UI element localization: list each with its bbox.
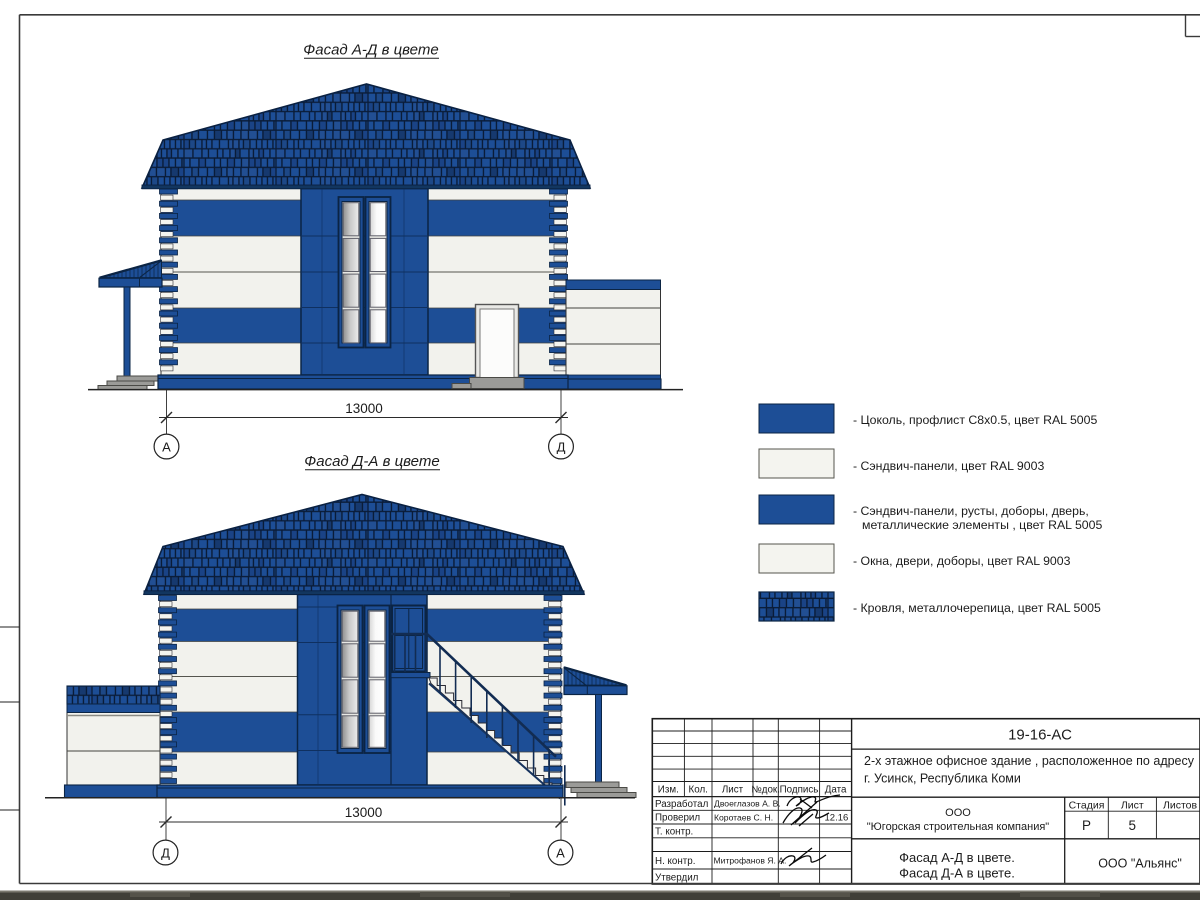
svg-text:ООО: ООО [945, 807, 971, 819]
svg-text:ООО "Альянс": ООО "Альянс" [1098, 857, 1182, 871]
svg-text:- Сэндвич-панели, русты, добор: - Сэндвич-панели, русты, доборы, дверь, [853, 504, 1089, 518]
svg-text:Фасад А-Д в цвете: Фасад А-Д в цвете [303, 42, 438, 59]
svg-text:№док.: №док. [751, 785, 780, 796]
svg-text:Фасад Д-А в цвете: Фасад Д-А в цвете [304, 453, 439, 470]
svg-text:Лист: Лист [1121, 800, 1144, 812]
svg-text:Коротаев С. Н.: Коротаев С. Н. [714, 812, 773, 822]
svg-text:- Сэндвич-панели, цвет RAL 900: - Сэндвич-панели, цвет RAL 9003 [853, 459, 1044, 473]
svg-text:Утвердил: Утвердил [655, 873, 699, 884]
svg-text:Изм.: Изм. [658, 785, 679, 796]
svg-text:Стадия: Стадия [1069, 800, 1105, 812]
svg-text:Р: Р [1082, 818, 1091, 833]
svg-text:Дата: Дата [825, 785, 847, 796]
svg-text:Листов: Листов [1163, 800, 1198, 812]
svg-text:- Кровля, металлочерепица, цве: - Кровля, металлочерепица, цвет RAL 5005 [853, 601, 1101, 615]
svg-text:- Цоколь, профлист С8х0.5, цве: - Цоколь, профлист С8х0.5, цвет RAL 5005 [853, 413, 1097, 427]
svg-text:Фасад А-Д в цвете.: Фасад А-Д в цвете. [899, 850, 1015, 865]
svg-text:Лист: Лист [722, 785, 744, 796]
svg-text:Митрофанов Я. А.: Митрофанов Я. А. [714, 856, 787, 866]
svg-text:Двоеглазов А. В.: Двоеглазов А. В. [714, 799, 781, 809]
svg-text:- Окна, двери, доборы, цвет RA: - Окна, двери, доборы, цвет RAL 9003 [853, 554, 1071, 568]
svg-text:А: А [556, 846, 565, 861]
svg-text:Кол.: Кол. [689, 785, 708, 796]
svg-text:Н. контр.: Н. контр. [655, 856, 695, 867]
svg-text:Т. контр.: Т. контр. [655, 826, 693, 837]
svg-text:13000: 13000 [345, 805, 383, 820]
svg-text:металлические элементы , цвет: металлические элементы , цвет RAL 5005 [862, 518, 1102, 532]
svg-text:2-х этажное офисное здание , р: 2-х этажное офисное здание , расположенн… [864, 754, 1195, 768]
svg-text:А: А [162, 440, 171, 455]
svg-text:5: 5 [1129, 818, 1137, 833]
svg-text:19-16-АС: 19-16-АС [1008, 727, 1072, 744]
svg-text:13000: 13000 [345, 401, 383, 416]
svg-text:Д: Д [161, 846, 170, 861]
svg-text:г. Усинск, Республика Коми: г. Усинск, Республика Коми [864, 772, 1021, 786]
svg-text:Фасад Д-А в цвете.: Фасад Д-А в цвете. [899, 866, 1015, 881]
svg-text:Подпись: Подпись [780, 785, 819, 796]
svg-text:Разработал: Разработал [655, 799, 709, 810]
svg-text:Проверил: Проверил [655, 813, 700, 824]
svg-text:"Югорская строительная компани: "Югорская строительная компания" [867, 821, 1050, 833]
svg-text:Д: Д [557, 440, 566, 455]
